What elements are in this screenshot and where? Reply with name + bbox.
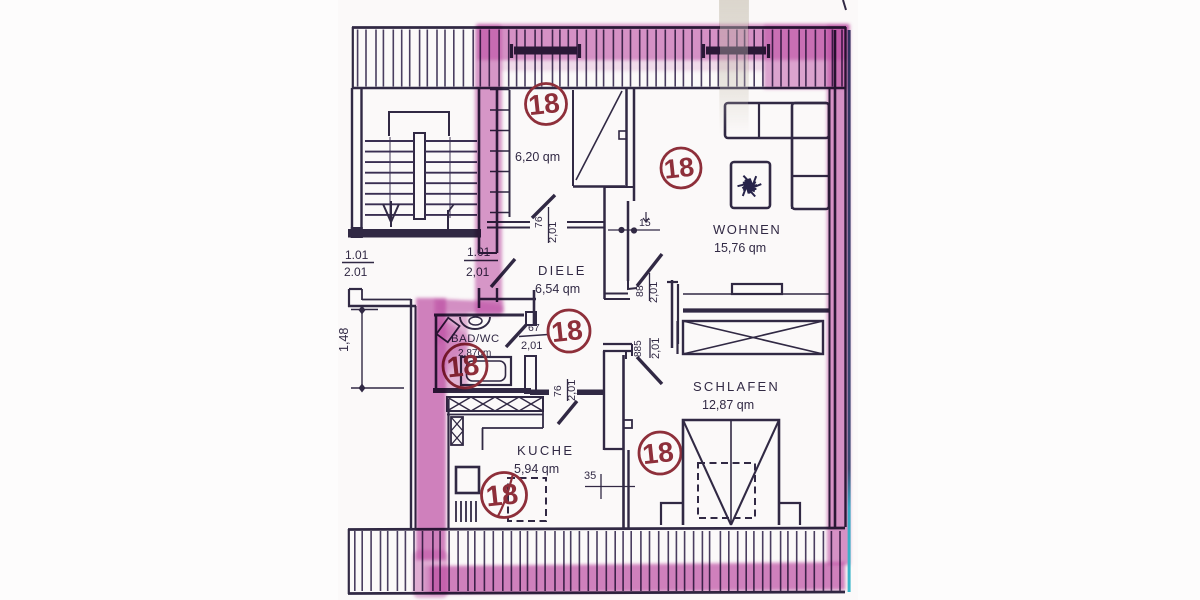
svg-text:1,48: 1,48: [337, 328, 351, 352]
svg-text:1.01: 1.01: [345, 248, 369, 262]
svg-text:18: 18: [663, 152, 696, 185]
svg-text:18: 18: [527, 87, 561, 121]
svg-text:76: 76: [533, 216, 545, 228]
svg-text:885: 885: [633, 340, 644, 357]
svg-text:6,54 qm: 6,54 qm: [535, 282, 580, 296]
svg-text:DIELE: DIELE: [538, 263, 587, 278]
svg-text:35: 35: [584, 470, 596, 482]
svg-text:2,01: 2,01: [521, 340, 542, 352]
svg-text:2,01: 2,01: [566, 380, 578, 401]
svg-text:18: 18: [550, 314, 584, 348]
svg-text:67: 67: [528, 322, 540, 334]
svg-text:12,87 qm: 12,87 qm: [702, 398, 754, 412]
svg-text:KUCHE: KUCHE: [517, 443, 575, 458]
svg-text:5,94 qm: 5,94 qm: [514, 462, 559, 476]
svg-text:2.01: 2.01: [344, 265, 368, 279]
svg-text:2,01: 2,01: [648, 282, 660, 303]
svg-text:6,20 qm: 6,20 qm: [515, 150, 560, 164]
svg-text:88: 88: [634, 285, 646, 297]
svg-text:15,76 qm: 15,76 qm: [714, 241, 766, 255]
svg-text:2,01: 2,01: [650, 338, 662, 359]
svg-text:18: 18: [641, 436, 675, 470]
svg-text:WOHNEN: WOHNEN: [713, 222, 781, 237]
svg-text:2,01: 2,01: [547, 222, 559, 243]
svg-text:76: 76: [552, 385, 564, 397]
svg-text:SCHLAFEN: SCHLAFEN: [693, 379, 780, 394]
